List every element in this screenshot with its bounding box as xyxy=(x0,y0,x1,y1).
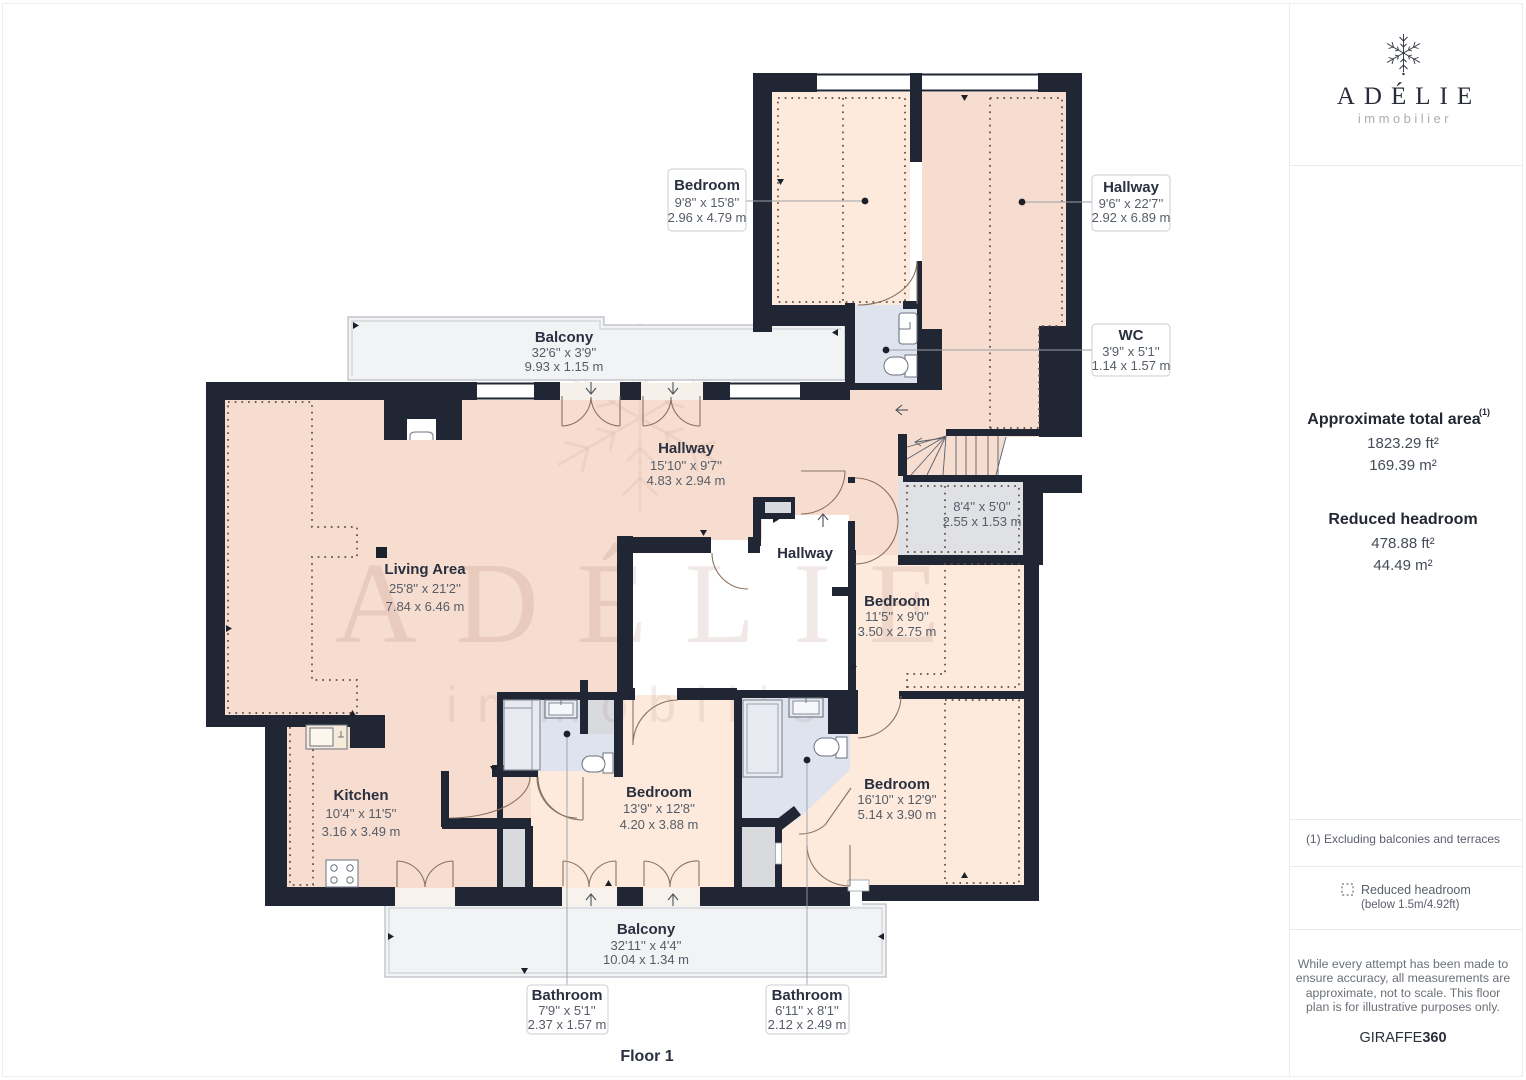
svg-text:Reduced headroom: Reduced headroom xyxy=(1328,511,1477,528)
svg-text:4.20 x 3.88 m: 4.20 x 3.88 m xyxy=(620,817,699,832)
svg-text:11'5'' x 9'0'': 11'5'' x 9'0'' xyxy=(865,609,929,624)
svg-text:Bathroom: Bathroom xyxy=(532,987,603,1004)
svg-text:Balcony: Balcony xyxy=(617,921,676,938)
svg-text:Bedroom: Bedroom xyxy=(674,177,740,194)
svg-text:10'4'' x 11'5'': 10'4'' x 11'5'' xyxy=(325,806,396,821)
svg-text:ADÉLIE: ADÉLIE xyxy=(1337,82,1481,110)
svg-text:1.14 x 1.57 m: 1.14 x 1.57 m xyxy=(1092,358,1171,373)
svg-text:Reduced headroom: Reduced headroom xyxy=(1361,883,1471,897)
svg-text:169.39 m²: 169.39 m² xyxy=(1369,457,1437,474)
svg-text:4.83 x 2.94 m: 4.83 x 2.94 m xyxy=(647,473,726,488)
svg-text:1823.29 ft²: 1823.29 ft² xyxy=(1367,435,1439,452)
svg-text:7'9'' x 5'1'': 7'9'' x 5'1'' xyxy=(538,1003,596,1018)
svg-text:Approximate total area: Approximate total area xyxy=(1307,411,1480,428)
svg-text:25'8'' x 21'2'': 25'8'' x 21'2'' xyxy=(389,581,461,596)
svg-text:10.04 x 1.34 m: 10.04 x 1.34 m xyxy=(603,952,689,967)
svg-text:3.50 x 2.75 m: 3.50 x 2.75 m xyxy=(858,624,937,639)
svg-text:6'11'' x 8'1'': 6'11'' x 8'1'' xyxy=(775,1003,839,1018)
svg-text:Bedroom: Bedroom xyxy=(864,593,930,610)
svg-text:WC: WC xyxy=(1119,327,1144,344)
svg-text:(1) Excluding balconies and te: (1) Excluding balconies and terraces xyxy=(1306,832,1500,846)
svg-text:2.55 x 1.53 m: 2.55 x 1.53 m xyxy=(943,514,1022,529)
svg-text:approximate, not to scale. Thi: approximate, not to scale. This floor xyxy=(1306,986,1501,1000)
svg-text:Balcony: Balcony xyxy=(535,329,594,346)
svg-text:32'6'' x 3'9'': 32'6'' x 3'9'' xyxy=(532,345,597,360)
svg-text:7.84 x 6.46 m: 7.84 x 6.46 m xyxy=(386,599,465,614)
svg-text:plan is for illustrative purpo: plan is for illustrative purposes only. xyxy=(1306,1000,1500,1014)
svg-text:GIRAFFE360: GIRAFFE360 xyxy=(1359,1030,1446,1046)
svg-text:16'10'' x 12'9'': 16'10'' x 12'9'' xyxy=(857,792,936,807)
svg-text:(1): (1) xyxy=(1479,407,1490,417)
svg-text:478.88 ft²: 478.88 ft² xyxy=(1371,535,1434,552)
svg-text:2.92 x 6.89 m: 2.92 x 6.89 m xyxy=(1092,210,1171,225)
svg-text:immobilier: immobilier xyxy=(1358,111,1452,126)
svg-text:2.12 x 2.49 m: 2.12 x 2.49 m xyxy=(768,1017,847,1032)
svg-text:(below 1.5m/4.92ft): (below 1.5m/4.92ft) xyxy=(1361,899,1460,911)
svg-text:9'8'' x 15'8'': 9'8'' x 15'8'' xyxy=(675,195,740,210)
svg-text:2.37 x 1.57 m: 2.37 x 1.57 m xyxy=(528,1017,607,1032)
svg-text:Hallway: Hallway xyxy=(658,440,715,457)
svg-text:Bedroom: Bedroom xyxy=(626,784,692,801)
svg-text:Hallway: Hallway xyxy=(1103,179,1160,196)
svg-text:ensure accuracy, all measureme: ensure accuracy, all measurements are xyxy=(1296,971,1511,985)
svg-text:3'9'' x 5'1'': 3'9'' x 5'1'' xyxy=(1102,344,1160,359)
svg-text:9'6'' x 22'7'': 9'6'' x 22'7'' xyxy=(1099,196,1164,211)
svg-text:13'9'' x 12'8'': 13'9'' x 12'8'' xyxy=(623,801,695,816)
svg-text:2.96 x 4.79 m: 2.96 x 4.79 m xyxy=(668,210,747,225)
svg-text:Kitchen: Kitchen xyxy=(333,787,388,804)
svg-text:Floor 1: Floor 1 xyxy=(620,1048,673,1065)
svg-text:44.49 m²: 44.49 m² xyxy=(1373,557,1432,574)
svg-text:32'11'' x 4'4'': 32'11'' x 4'4'' xyxy=(610,938,681,953)
svg-text:Hallway: Hallway xyxy=(777,545,834,562)
svg-text:Bedroom: Bedroom xyxy=(864,776,930,793)
svg-text:15'10'' x 9'7'': 15'10'' x 9'7'' xyxy=(650,458,722,473)
svg-text:8'4'' x 5'0'': 8'4'' x 5'0'' xyxy=(953,499,1011,514)
svg-text:Living Area: Living Area xyxy=(384,561,466,578)
svg-text:Bathroom: Bathroom xyxy=(772,987,843,1004)
svg-text:3.16 x 3.49 m: 3.16 x 3.49 m xyxy=(322,824,401,839)
svg-text:5.14 x 3.90 m: 5.14 x 3.90 m xyxy=(858,807,937,822)
svg-text:9.93 x 1.15 m: 9.93 x 1.15 m xyxy=(525,359,604,374)
svg-text:While every attempt has been m: While every attempt has been made to xyxy=(1298,957,1509,971)
